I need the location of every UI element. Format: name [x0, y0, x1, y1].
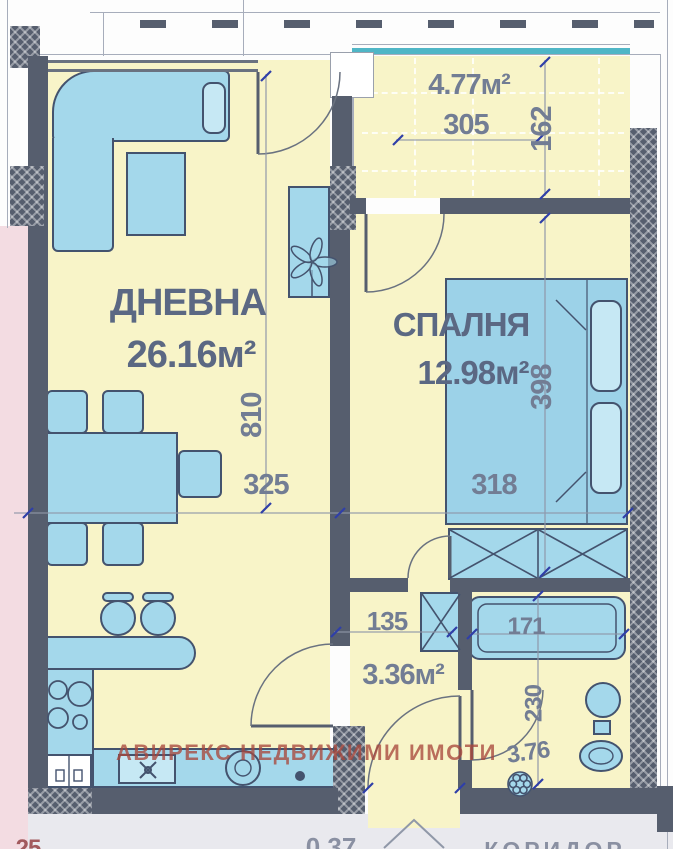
room-label-bedroom: СПАЛНЯ — [386, 308, 536, 343]
floor-plan: ДНЕВНА 26.16м² СПАЛНЯ 12.98м² 4.77м² 305… — [0, 0, 673, 849]
door-living-terrace — [258, 72, 340, 154]
cooktop-burners — [48, 681, 92, 729]
area-label-terrace: 4.77м² — [404, 70, 534, 100]
door-living-hallway — [251, 644, 333, 726]
area-label-living: 26.16м² — [106, 336, 276, 376]
level-mark-triangle — [384, 820, 444, 848]
dim-living-length: 810 — [237, 375, 267, 455]
room-label-living: ДНЕВНА — [108, 284, 268, 324]
plant-icon — [289, 237, 337, 296]
wardrobe-x-marks — [450, 530, 626, 578]
edge-label-right: КОРИДОР — [460, 838, 650, 849]
door-bedroom-terrace — [366, 214, 444, 292]
dim-hallway-width: 135 — [352, 608, 422, 635]
dim-bath-width: 171 — [496, 614, 556, 639]
shaft-x-mark — [422, 594, 460, 650]
dim-bath-length: 230 — [521, 664, 546, 744]
watermark-text: АВИРЕКС НЕДВИЖИМИ ИМОТИ — [116, 740, 497, 766]
edge-label-left: 25 — [6, 836, 50, 849]
edge-label-mid: 0.37 — [296, 834, 366, 849]
dim-bedroom-width: 318 — [456, 470, 532, 500]
fridge-detail — [56, 756, 82, 786]
dim-terrace-depth: 162 — [527, 89, 557, 169]
bed-fold-lines — [556, 300, 586, 502]
toilet — [586, 683, 620, 734]
plan-vector-overlay — [0, 0, 673, 849]
area-label-hallway: 3.36м² — [348, 660, 458, 690]
bathroom-sink — [580, 741, 622, 771]
shower-flower-icon — [508, 772, 532, 796]
door-bedroom-hallway — [408, 536, 450, 578]
dim-bedroom-length: 398 — [527, 347, 557, 427]
dim-living-width: 325 — [228, 470, 304, 500]
dim-terrace-width: 305 — [430, 110, 502, 140]
